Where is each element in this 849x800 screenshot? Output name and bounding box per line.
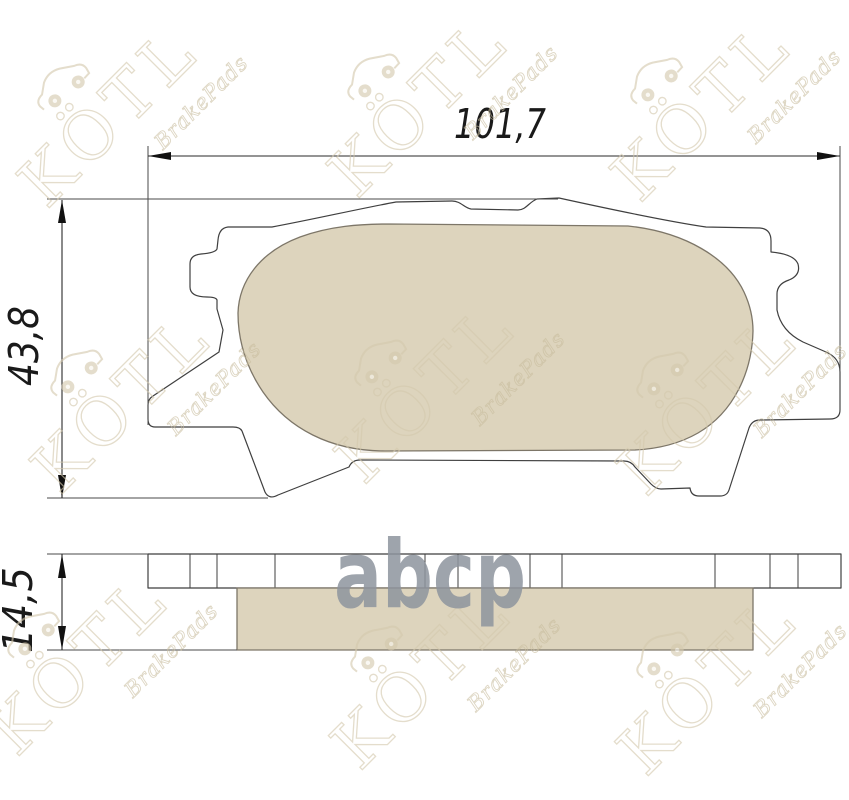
dim-label-thickness: 14,5 [0, 567, 42, 653]
kotl-watermark-layer [0, 0, 849, 800]
drawing-canvas: KÖTL BrakePads [0, 0, 849, 800]
arrowhead-top [58, 554, 66, 578]
arrowhead-left [148, 152, 171, 160]
kotl-watermark [0, 0, 253, 242]
abcp-logo-watermark: abcp [334, 521, 526, 630]
kotl-watermark [571, 0, 846, 236]
brake-pad-drawing: KÖTL BrakePads [0, 0, 849, 800]
dim-label-height: 43,8 [0, 306, 48, 386]
arrowhead-right [817, 152, 840, 160]
